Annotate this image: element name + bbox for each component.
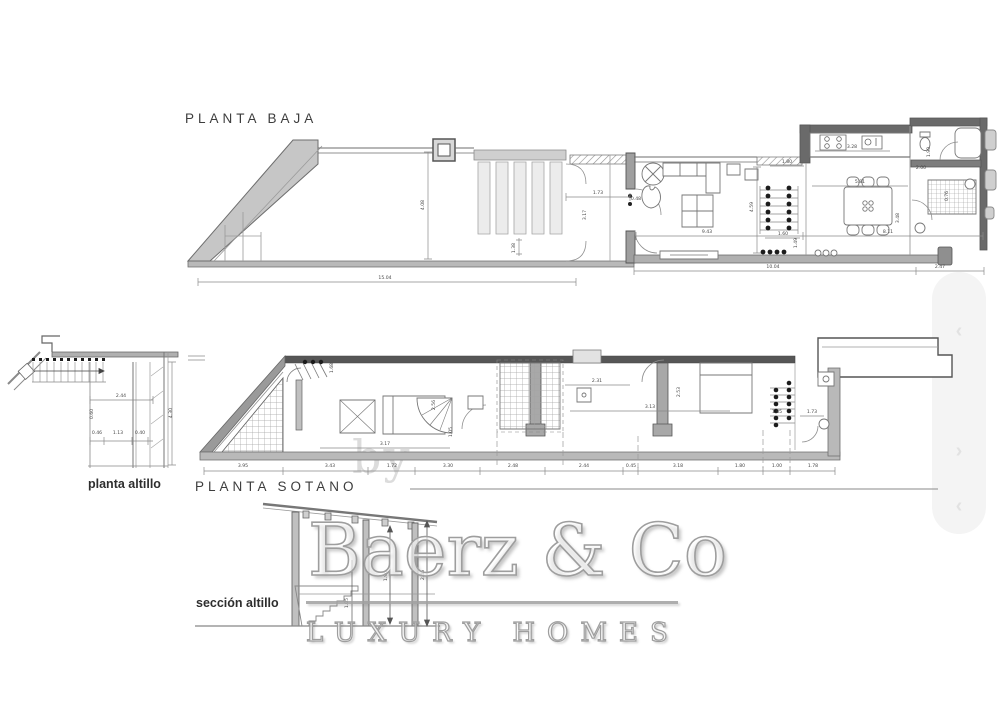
dimension-label: 1.78 [808,463,818,469]
dimension-label: 1.73 [593,190,603,196]
ceiling-fan-icon [642,163,664,185]
dimension-label: 3.17 [380,441,390,447]
floorplan-drawing: 15.0410.042.471.730.483.174.081.384.599.… [0,0,1000,701]
watermark-tagline: LUXURY HOMES [306,618,678,648]
dimension-label: 2.31 [592,378,602,384]
dimension-label: 0.40 [135,430,145,436]
planta-sotano-title: PLANTA SOTANO [195,479,358,494]
post [292,512,299,626]
coffee-table [682,195,713,227]
dimension-label: 3.43 [325,463,335,469]
dimension-label: 1.68 [329,363,335,373]
watermark-brand: Baerz & Co [308,508,727,592]
hatched-wall [570,155,626,164]
dimension-label: 2.00 [916,165,926,171]
dimension-label: 1.73 [807,409,817,415]
dining-area [815,177,892,256]
dimension-label: 1.90 [926,147,932,157]
dimension-label: 3.18 [673,463,683,469]
plant-icon [642,186,661,208]
dimension-label: 3.95 [238,463,248,469]
floorplan-page: { "labels": { "planta_baja": "PLANTA BAJ… [0,0,1000,701]
seccion-altillo-label: sección altillo [196,596,279,610]
dimension-label: 8.11 [883,229,893,235]
dimension-label: 2.48 [508,463,518,469]
dimension-label: 1.05 [448,427,454,437]
dimension-label: 0.48 [631,196,641,202]
planta-altillo-label: planta altillo [88,477,161,491]
dimension-label: 1.00 [772,463,782,469]
dimension-label: 10.04 [766,264,779,270]
living-room [642,163,758,259]
dimension-label: 0.60 [89,409,95,419]
planta-baja-title: PLANTA BAJA [185,111,317,126]
dimension-label: 4.08 [420,200,426,210]
dimension-label: 1.80 [735,463,745,469]
dimension-label: 1.85 [772,409,782,415]
dimension-label: 3.17 [582,210,588,220]
door-arc [635,231,657,253]
terrace-bottom-wall [188,261,634,267]
watermark-divider [306,601,678,604]
column [433,139,455,161]
dimension-label: 1.49 [793,238,799,248]
bed-2 [700,363,752,413]
dimension-label: 2.56 [431,400,437,410]
dimension-label: 9.43 [702,229,712,235]
dimension-label: 0.45 [626,463,636,469]
dimension-label: 0.76 [944,191,950,201]
sofa [663,163,758,193]
terrace-diagonal-wall [188,140,318,261]
kitchen [810,133,910,157]
dimension-label: 1.60 [778,231,788,237]
dimension-label: 2.47 [935,264,945,270]
dimension-label: 0.46 [92,430,102,436]
plan-planta-altillo: 2.444.300.461.130.400.60 [8,336,178,468]
dimension-label: 2.44 [579,463,589,469]
plan-planta-baja: 15.0410.042.471.730.483.174.081.384.599.… [188,118,996,286]
dimension-label: 1.72 [387,463,397,469]
dimension-label: 5.81 [855,179,865,185]
dimension-label: 1.13 [113,430,123,436]
dimension-label: 1.80 [782,159,792,165]
stairs-sotano [770,363,795,450]
lightwell-grid [500,363,560,429]
stairs-baja [760,186,798,255]
dimension-label: 3.30 [443,463,453,469]
patio-grid [222,378,283,452]
dimension-label: 3.28 [847,144,857,150]
sink-icon [965,179,975,189]
bathtub [955,128,981,158]
dimension-label: 3.48 [895,213,901,223]
dining-table [844,187,892,225]
pergola [474,150,566,234]
dimension-label: 4.30 [168,408,174,418]
dimension-label: 3.13 [645,404,655,410]
plan-planta-sotano: 3.953.431.723.302.482.440.453.181.801.00… [188,338,952,475]
dimension-label: 15.04 [378,275,391,281]
dimension-label: 1.38 [511,243,517,253]
dimension-label: 2.44 [116,393,126,399]
dimension-label: 2.53 [676,387,682,397]
dimension-label: 4.59 [749,202,755,212]
